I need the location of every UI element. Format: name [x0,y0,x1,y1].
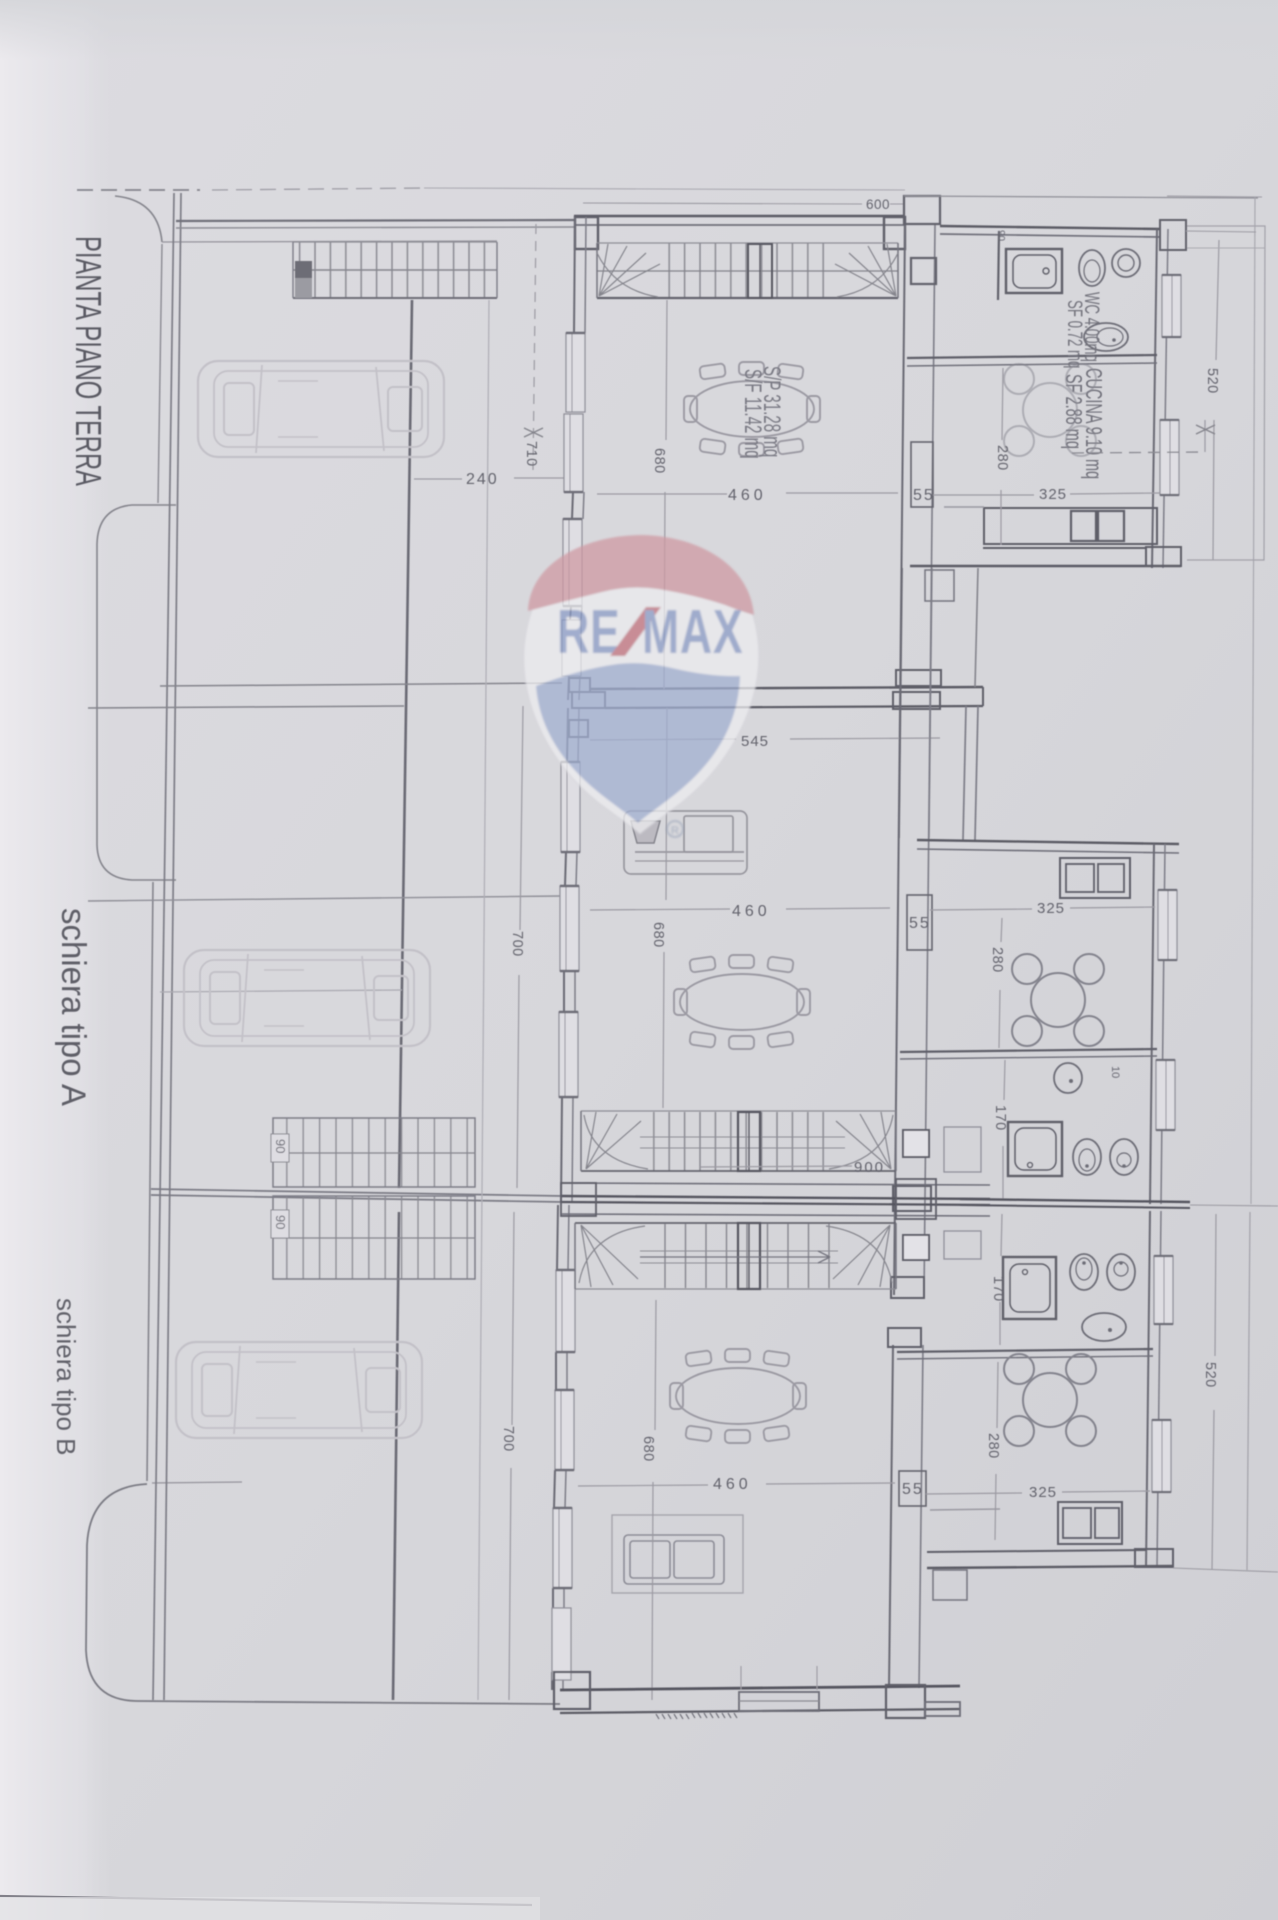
svg-text:325: 325 [1037,900,1065,917]
svg-text:280: 280 [989,947,1005,973]
svg-text:SF 0.72 mq: SF 0.72 mq [1063,300,1087,368]
svg-text:schiera tipo B: schiera tipo B [51,1298,81,1456]
svg-text:545: 545 [741,733,769,750]
svg-text:MAX: MAX [642,598,743,667]
svg-text:460: 460 [713,1476,752,1493]
svg-text:900: 900 [854,1159,885,1176]
svg-text:schiera tipo A: schiera tipo A [54,908,92,1107]
svg-text:170: 170 [990,1276,1006,1302]
svg-text:280: 280 [994,445,1010,471]
svg-text:460: 460 [728,487,767,504]
svg-text:700: 700 [509,931,525,957]
svg-text:600: 600 [866,197,890,212]
svg-text:170: 170 [992,1105,1008,1131]
svg-text:680: 680 [650,922,666,948]
svg-text:90: 90 [995,230,1006,242]
svg-text:700: 700 [500,1426,516,1452]
svg-text:325: 325 [1039,486,1067,503]
svg-text:PIANTA PIANO TERRA: PIANTA PIANO TERRA [68,236,108,486]
svg-text:680: 680 [640,1436,656,1462]
svg-text:325: 325 [1029,1484,1057,1501]
svg-text:460: 460 [732,903,771,920]
svg-text:55: 55 [902,1481,924,1498]
svg-text:520: 520 [1202,1362,1218,1388]
svg-text:710: 710 [523,441,539,467]
svg-text:240: 240 [466,471,499,488]
svg-text:55: 55 [913,487,935,504]
svg-text:520: 520 [1204,368,1220,394]
svg-text:R: R [671,825,679,837]
svg-text:10: 10 [1109,1066,1121,1078]
svg-text:90: 90 [273,1215,288,1229]
svg-text:55: 55 [909,915,931,932]
svg-text:280: 280 [985,1433,1001,1459]
svg-text:S/F 11.42 mq: S/F 11.42 mq [739,369,765,459]
svg-text:SF 2.88 mq: SF 2.88 mq [1060,374,1085,449]
svg-text:90: 90 [273,1139,288,1153]
svg-text:680: 680 [651,448,667,474]
svg-text:RE: RE [557,598,620,667]
